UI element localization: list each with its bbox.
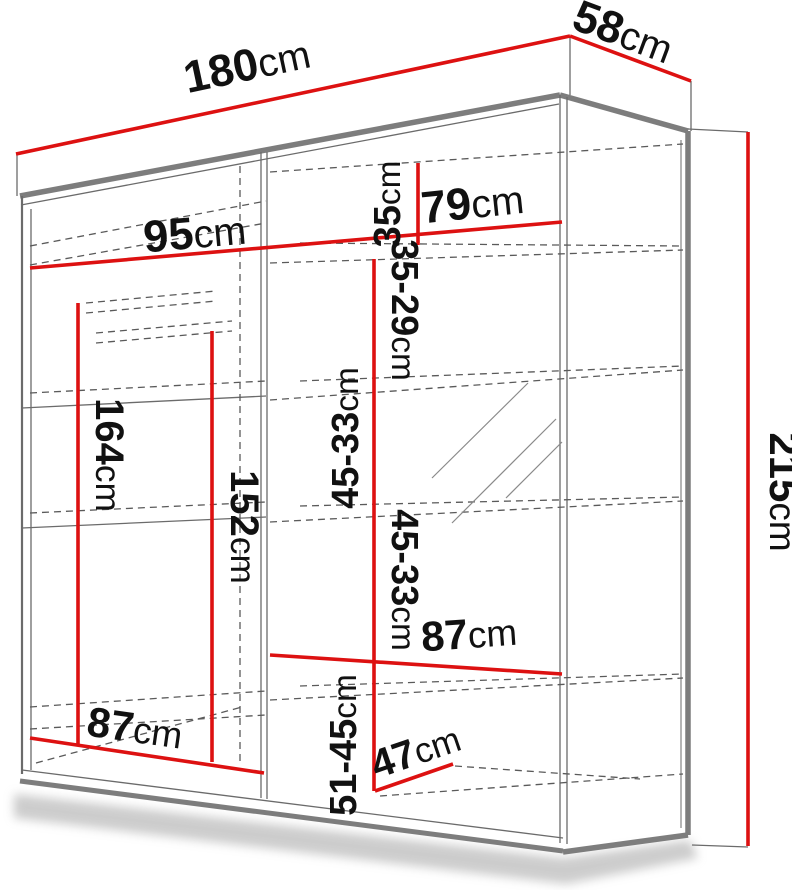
wardrobe-dimension-diagram: 180cm 58cm 215cm 95cm 79cm 35cm 35-29cm … — [0, 0, 792, 890]
label-gap-45-33-upper: 45-33cm — [325, 367, 367, 509]
left-floor-dash-a — [30, 691, 266, 707]
label-bottom-right-87: 87cm — [419, 607, 518, 661]
hanging-rail-bottom-dash — [86, 301, 216, 313]
right-floor-dash — [380, 774, 683, 796]
hanging-rail-top-dash — [86, 291, 216, 303]
mirror-hatch-3 — [506, 442, 562, 498]
label-left-section-95: 95cm — [141, 203, 248, 263]
label-gap-51-45: 51-45cm — [323, 674, 365, 816]
label-gap-35-29: 35-29cm — [383, 239, 425, 381]
dim-line-bottom-right-87 — [270, 655, 562, 674]
label-height-152: 152cm — [222, 470, 266, 584]
left-shelf-solid-upper — [22, 396, 266, 408]
label-gap-45-33-lower: 45-33cm — [383, 509, 425, 651]
diagram-canvas: 180cm 58cm 215cm 95cm 79cm 35cm 35-29cm … — [0, 0, 792, 890]
top-board-underside-dash — [270, 144, 683, 172]
label-height-215: 215cm — [761, 432, 792, 551]
label-height-164: 164cm — [87, 398, 131, 512]
label-right-section-79: 79cm — [419, 172, 527, 233]
extension-height-top — [688, 129, 748, 132]
cabinet-top-front-edge — [20, 95, 560, 196]
cabinet-top-right-edge — [560, 95, 688, 131]
right-shelf1-front-dash — [270, 250, 683, 263]
right-floor-depth-dash — [455, 766, 640, 779]
extension-height-bottom — [692, 845, 748, 847]
label-width-180: 180cm — [179, 27, 315, 103]
mirror-hatch-1 — [432, 383, 528, 478]
mirror-hatch-2 — [452, 419, 556, 523]
right-shelf1-back-dash — [300, 243, 683, 246]
left-shelf-back-dash-1 — [30, 381, 266, 393]
label-top-gap-35: 35cm — [367, 161, 409, 248]
label-depth-58: 58cm — [566, 0, 680, 73]
